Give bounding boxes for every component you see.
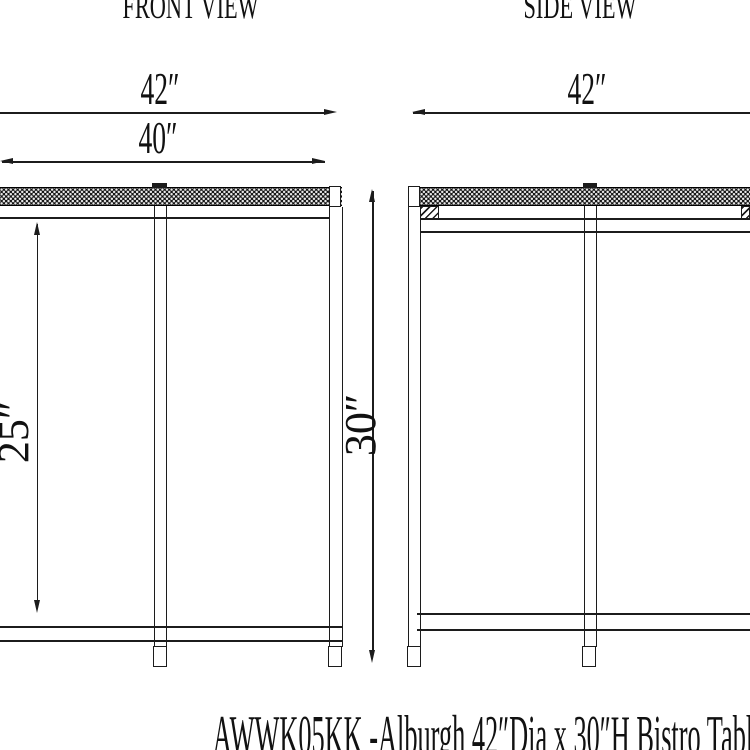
side-center-leg [584, 206, 597, 647]
side-center-foot [582, 646, 596, 667]
front-right-leg-top [329, 186, 341, 207]
front-dim-40-line [2, 161, 325, 163]
front-stretcher-bottom-line [0, 640, 342, 642]
arrow-left-icon [412, 109, 425, 115]
arrow-down-icon [34, 600, 40, 613]
front-right-foot [328, 646, 342, 667]
front-center-leg-cap [152, 183, 167, 188]
arrow-down-icon [369, 650, 375, 663]
side-dim-42-label: 42″ [558, 66, 616, 112]
front-view-label: FRONT VIEW [123, 0, 216, 24]
side-left-leg-top [408, 186, 420, 207]
side-center-leg-cap [583, 183, 597, 188]
arrow-up-icon [369, 189, 375, 202]
front-stretcher-top-line [0, 626, 342, 628]
arrow-right-icon [312, 158, 325, 164]
technical-drawing-canvas: FRONT VIEW SIDE VIEW 42″ 40″ 25″ 30″ 42″ [0, 0, 750, 750]
front-dim-40-label: 40″ [129, 115, 187, 161]
arrow-up-icon [34, 222, 40, 235]
arrow-left-icon [0, 158, 13, 164]
arrow-right-icon [324, 109, 337, 115]
front-dim-25-label: 25″ [0, 389, 35, 475]
side-left-foot [407, 646, 421, 667]
side-view-label: SIDE VIEW [524, 0, 617, 24]
front-tabletop-weave [0, 187, 342, 206]
front-dim-30-label: 30″ [338, 382, 382, 468]
front-center-foot [153, 646, 167, 667]
front-center-leg [154, 206, 167, 647]
side-dim-42-line [413, 112, 750, 114]
side-left-leg [408, 207, 421, 647]
front-dim-42-label: 42″ [131, 66, 189, 112]
drawing-title: AWWK05KK -Alburgh 42″Dia x 30″H Bistro T… [213, 708, 566, 750]
side-tabletop-weave [420, 187, 750, 206]
